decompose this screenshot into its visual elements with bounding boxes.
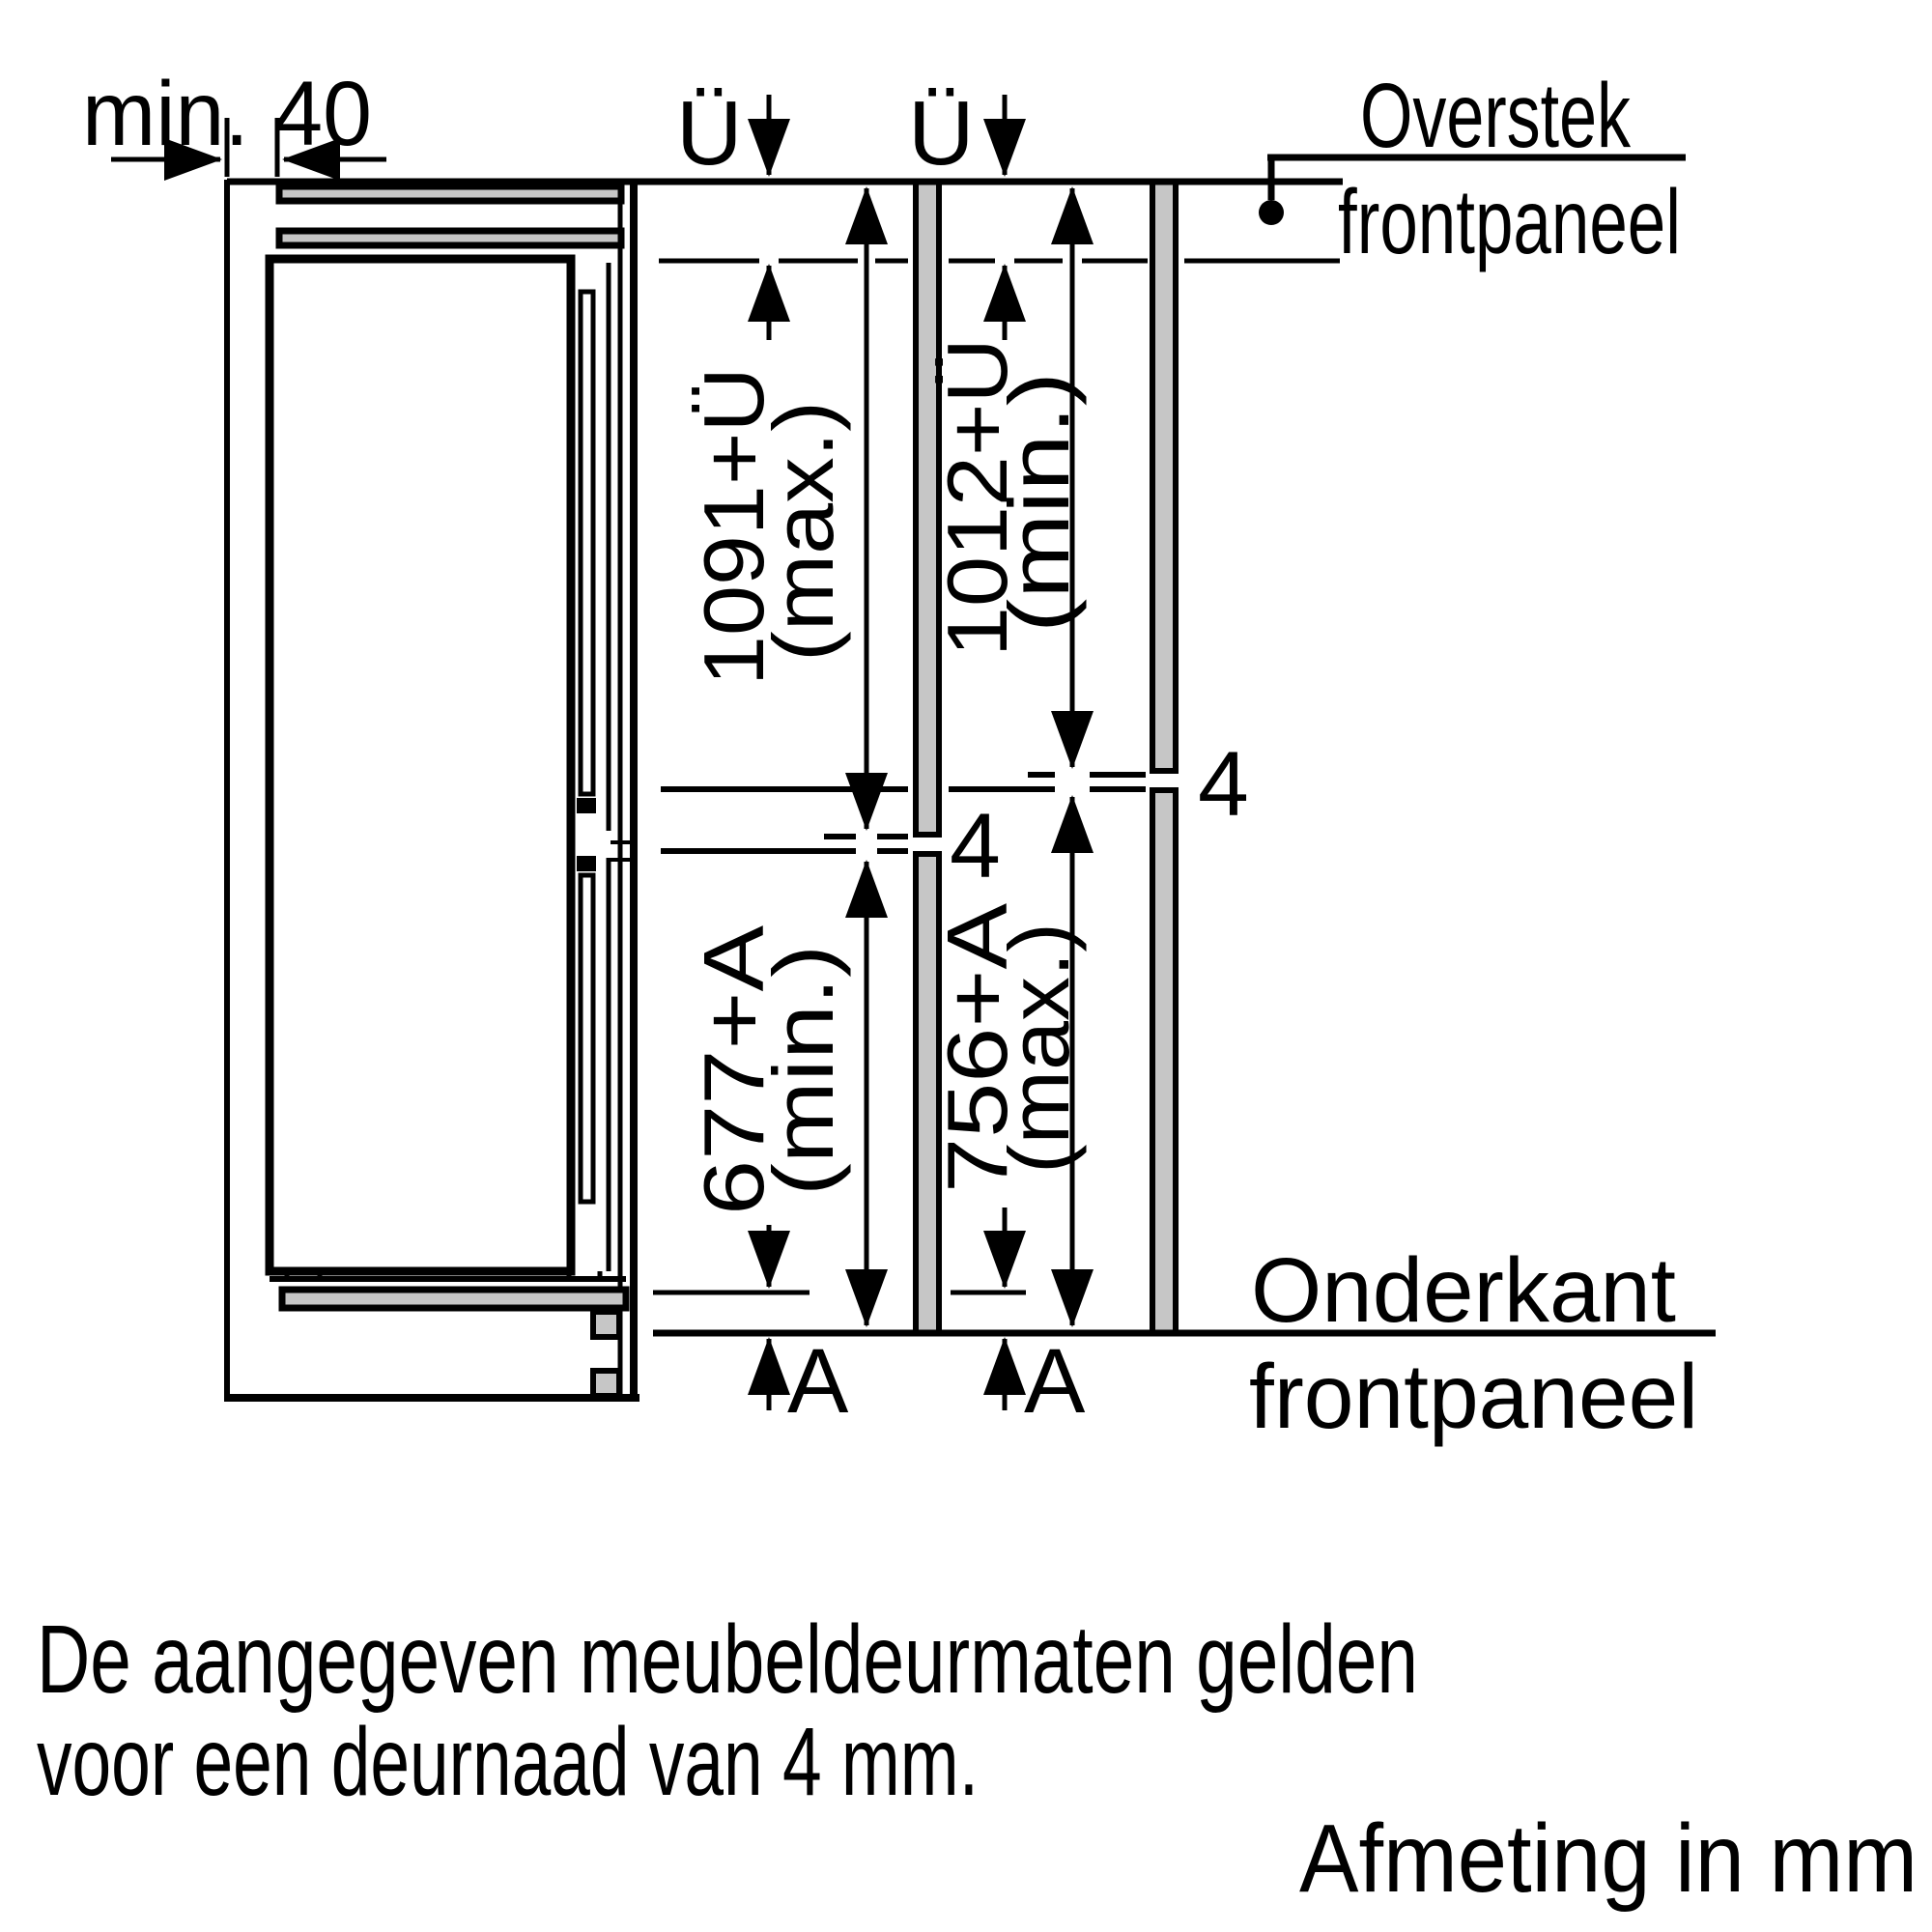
units-note: Afmeting in mm — [1299, 1804, 1918, 1913]
caption: De aangegeven meubeldeurmaten gelden voo… — [37, 1605, 1918, 1913]
joint-gap-right-label: 4 — [1198, 733, 1249, 836]
overhang-symbol-right: Ü — [908, 82, 975, 185]
top-vent-strip-1 — [279, 186, 621, 201]
onderkant-label-line2: frontpaneel — [1249, 1346, 1698, 1448]
lower-right-dimension-note: (max.) — [991, 923, 1087, 1174]
a-letter-left: A — [787, 1330, 849, 1433]
foot-block-lower — [593, 1371, 619, 1396]
door-mount-rail-lower — [581, 875, 593, 1202]
overstek-label-line2: frontpaneel — [1338, 171, 1681, 273]
appliance-door-front — [270, 259, 571, 1271]
right-joint-lines — [661, 775, 1146, 789]
left-joint-lines — [661, 837, 908, 851]
top-vent-strip-2 — [279, 231, 621, 245]
labels: min. 40 Ü Ü Overstek frontpaneel 1091+Ü … — [82, 63, 1698, 1448]
min40-label: min. 40 — [82, 63, 372, 165]
leader-dot — [1259, 200, 1284, 225]
cabinet-section — [224, 180, 639, 1398]
plinth-strip — [282, 1290, 626, 1308]
hinge-cap-lower — [577, 856, 596, 871]
joint-gap-left-label: 4 — [950, 795, 1001, 897]
appliance — [270, 259, 632, 1396]
installation-diagram: min. 40 Ü Ü Overstek frontpaneel 1091+Ü … — [0, 0, 1932, 1932]
lower-left-dimension-note: (min.) — [755, 945, 851, 1196]
hinge-cap-upper — [577, 798, 596, 813]
upper-right-dimension-note: (min.) — [991, 372, 1087, 633]
a-letter-right: A — [1024, 1330, 1086, 1433]
foot-block-upper — [593, 1312, 619, 1337]
door-mount-rail-upper — [581, 292, 593, 794]
upper-left-dimension-note: (max.) — [755, 401, 851, 662]
onderkant-label-line1: Onderkant — [1251, 1239, 1676, 1342]
front-panel-right-upper — [1152, 182, 1176, 771]
overhang-symbol-left: Ü — [676, 82, 743, 185]
caption-line1: De aangegeven meubeldeurmaten gelden — [37, 1605, 1418, 1714]
caption-line2: voor een deurnaad van 4 mm. — [37, 1708, 979, 1816]
front-panel-right-lower — [1152, 790, 1176, 1333]
overstek-label-line1: Overstek — [1360, 65, 1631, 167]
